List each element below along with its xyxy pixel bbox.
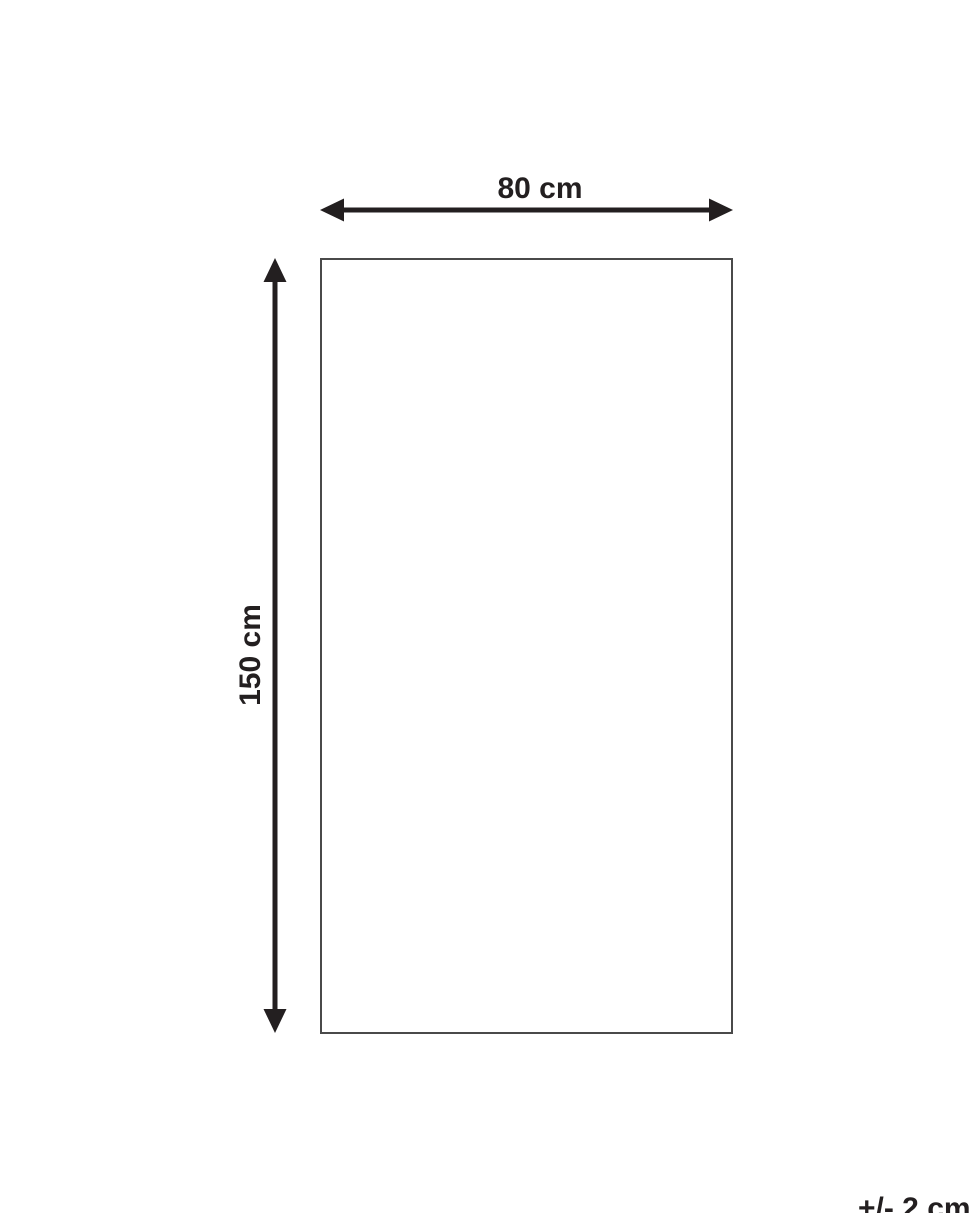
tolerance-label: +/- 2 cm [858, 1192, 970, 1213]
dimension-diagram: 80 cm 150 cm +/- 2 cm [0, 0, 970, 1213]
arrow-down-head-icon [264, 1009, 287, 1033]
height-dimension-label: 150 cm [234, 604, 268, 706]
width-dimension-label: 80 cm [497, 172, 582, 206]
product-outline-rectangle [320, 258, 733, 1034]
arrow-up-head-icon [264, 258, 287, 282]
arrow-left-head-icon [320, 199, 344, 222]
arrow-right-head-icon [709, 199, 733, 222]
